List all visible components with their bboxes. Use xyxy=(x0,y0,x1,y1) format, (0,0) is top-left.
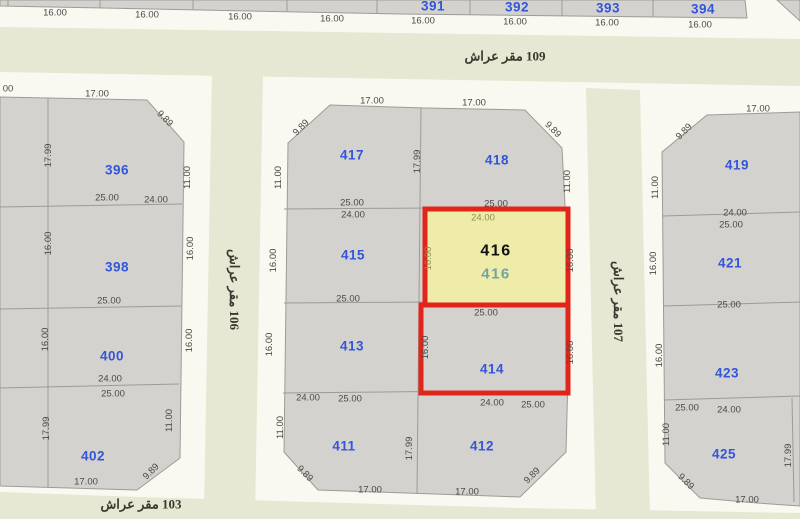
parcel-number[interactable]: 415 xyxy=(341,248,365,263)
selected-parcel-number[interactable]: 416 xyxy=(480,243,511,260)
block-left[interactable] xyxy=(0,97,184,490)
dim-label: 16.00 xyxy=(43,232,54,256)
parcel-number[interactable]: 413 xyxy=(340,339,364,354)
dim-label: 17.00 xyxy=(358,485,382,496)
dim-label: 16.00 xyxy=(43,8,67,19)
dim-label: 16.00 xyxy=(184,329,195,353)
dim-label: 16.00 xyxy=(320,14,344,25)
dim-label: 17.99 xyxy=(41,417,52,441)
dim-label: 17.00 xyxy=(746,104,770,115)
dim-label: 24.00 xyxy=(98,374,122,385)
parcel-number[interactable]: 400 xyxy=(100,349,124,364)
dim-label: 25.00 xyxy=(484,199,508,210)
dim-label: 17.99 xyxy=(783,444,794,468)
dim-label: 16.00 xyxy=(565,341,576,365)
dim-label: 24.00 xyxy=(723,208,747,219)
parcel-number[interactable]: 411 xyxy=(332,439,355,454)
parcel-number[interactable]: 417 xyxy=(340,148,364,163)
parcel-number[interactable]: 419 xyxy=(725,158,749,173)
parcel-number[interactable]: 402 xyxy=(81,449,105,464)
parcel-number[interactable]: 398 xyxy=(105,260,129,275)
dim-label: 24.00 xyxy=(296,393,320,404)
parcel-number[interactable]: 391 xyxy=(421,0,445,14)
dim-label: 25.00 xyxy=(340,198,364,209)
dim-label: 24.00 xyxy=(717,405,741,416)
dim-label: 25.00 xyxy=(338,394,362,405)
dim-label: 24.00 xyxy=(471,213,495,224)
dim-label: 24.00 xyxy=(480,398,504,409)
parcel-number[interactable]: 418 xyxy=(485,153,509,168)
dim-label: 17.00 xyxy=(85,89,109,100)
dim-label: 25.00 xyxy=(719,220,743,231)
dim-label: 16.00 xyxy=(185,237,196,261)
dim-label: 16.00 xyxy=(268,249,279,273)
dim-label: 11.00 xyxy=(650,176,661,199)
dim-label: 16.00 xyxy=(228,12,252,23)
dim-label: 00 xyxy=(3,84,14,95)
dim-label: 16.00 xyxy=(135,10,159,21)
dim-label: 11.00 xyxy=(562,170,573,193)
dim-label: 17.00 xyxy=(360,96,384,107)
cadastral-map[interactable]: 16.0016.0016.0016.0016.0016.0016.0016.00… xyxy=(0,0,800,519)
dim-label: 25.00 xyxy=(95,193,119,204)
dim-label: 16.00 xyxy=(565,249,576,273)
parcel-number[interactable]: 412 xyxy=(470,439,494,454)
parcel-number[interactable]: 396 xyxy=(105,163,129,178)
street-name: شارع رقم 107 xyxy=(610,261,626,343)
dim-label: 17.99 xyxy=(404,437,415,461)
dim-label: 25.00 xyxy=(336,294,360,305)
dim-label: 17.00 xyxy=(455,487,479,498)
parcel-number[interactable]: 425 xyxy=(712,447,736,462)
dim-label: 16.00 xyxy=(264,333,275,357)
dim-label: 17.00 xyxy=(735,495,759,506)
street-name: شارع رقم 103 xyxy=(100,497,182,513)
parcel-number[interactable]: 421 xyxy=(718,256,742,271)
dim-label: 16.00 xyxy=(654,344,665,368)
dim-label: 24.00 xyxy=(144,195,168,206)
parcel-number[interactable]: 392 xyxy=(505,0,529,15)
dim-label: 16.00 xyxy=(420,336,431,360)
dim-label: 16.00 xyxy=(595,18,619,29)
street-name: شارع رقم 109 xyxy=(464,49,546,65)
dim-label: 11.00 xyxy=(164,409,175,432)
selected-parcel-number[interactable]: 416 xyxy=(481,266,511,283)
dim-label: 25.00 xyxy=(97,296,121,307)
parcel-number[interactable]: 414 xyxy=(480,362,504,377)
dim-label: 17.00 xyxy=(462,98,486,109)
dim-label: 25.00 xyxy=(474,308,498,319)
dim-label: 16.00 xyxy=(40,328,51,352)
dim-label: 16.00 xyxy=(648,252,659,276)
dim-label: 11.00 xyxy=(275,416,286,439)
dim-label: 25.00 xyxy=(521,400,545,411)
dim-label: 25.00 xyxy=(101,389,125,400)
dim-label: 17.99 xyxy=(43,144,54,168)
dim-label: 11.00 xyxy=(273,166,284,189)
street-name: شارع رقم 106 xyxy=(226,249,242,331)
dim-label: 16.00 xyxy=(688,20,712,31)
parcel-number[interactable]: 394 xyxy=(691,2,715,17)
dim-label: 16.00 xyxy=(411,16,435,27)
parcel-number[interactable]: 423 xyxy=(715,366,739,381)
dim-label: 11.00 xyxy=(661,423,672,446)
dim-label: 25.00 xyxy=(675,403,699,414)
dim-label: 17.00 xyxy=(74,477,98,488)
dim-label: 24.00 xyxy=(341,210,365,221)
dim-label: 16.00 xyxy=(503,17,527,28)
dim-label: 25.00 xyxy=(717,300,741,311)
parcel-number[interactable]: 393 xyxy=(596,1,620,16)
dim-label: 16.00 xyxy=(423,247,434,271)
dim-label: 17.99 xyxy=(412,150,423,174)
dim-label: 11.00 xyxy=(182,166,193,189)
